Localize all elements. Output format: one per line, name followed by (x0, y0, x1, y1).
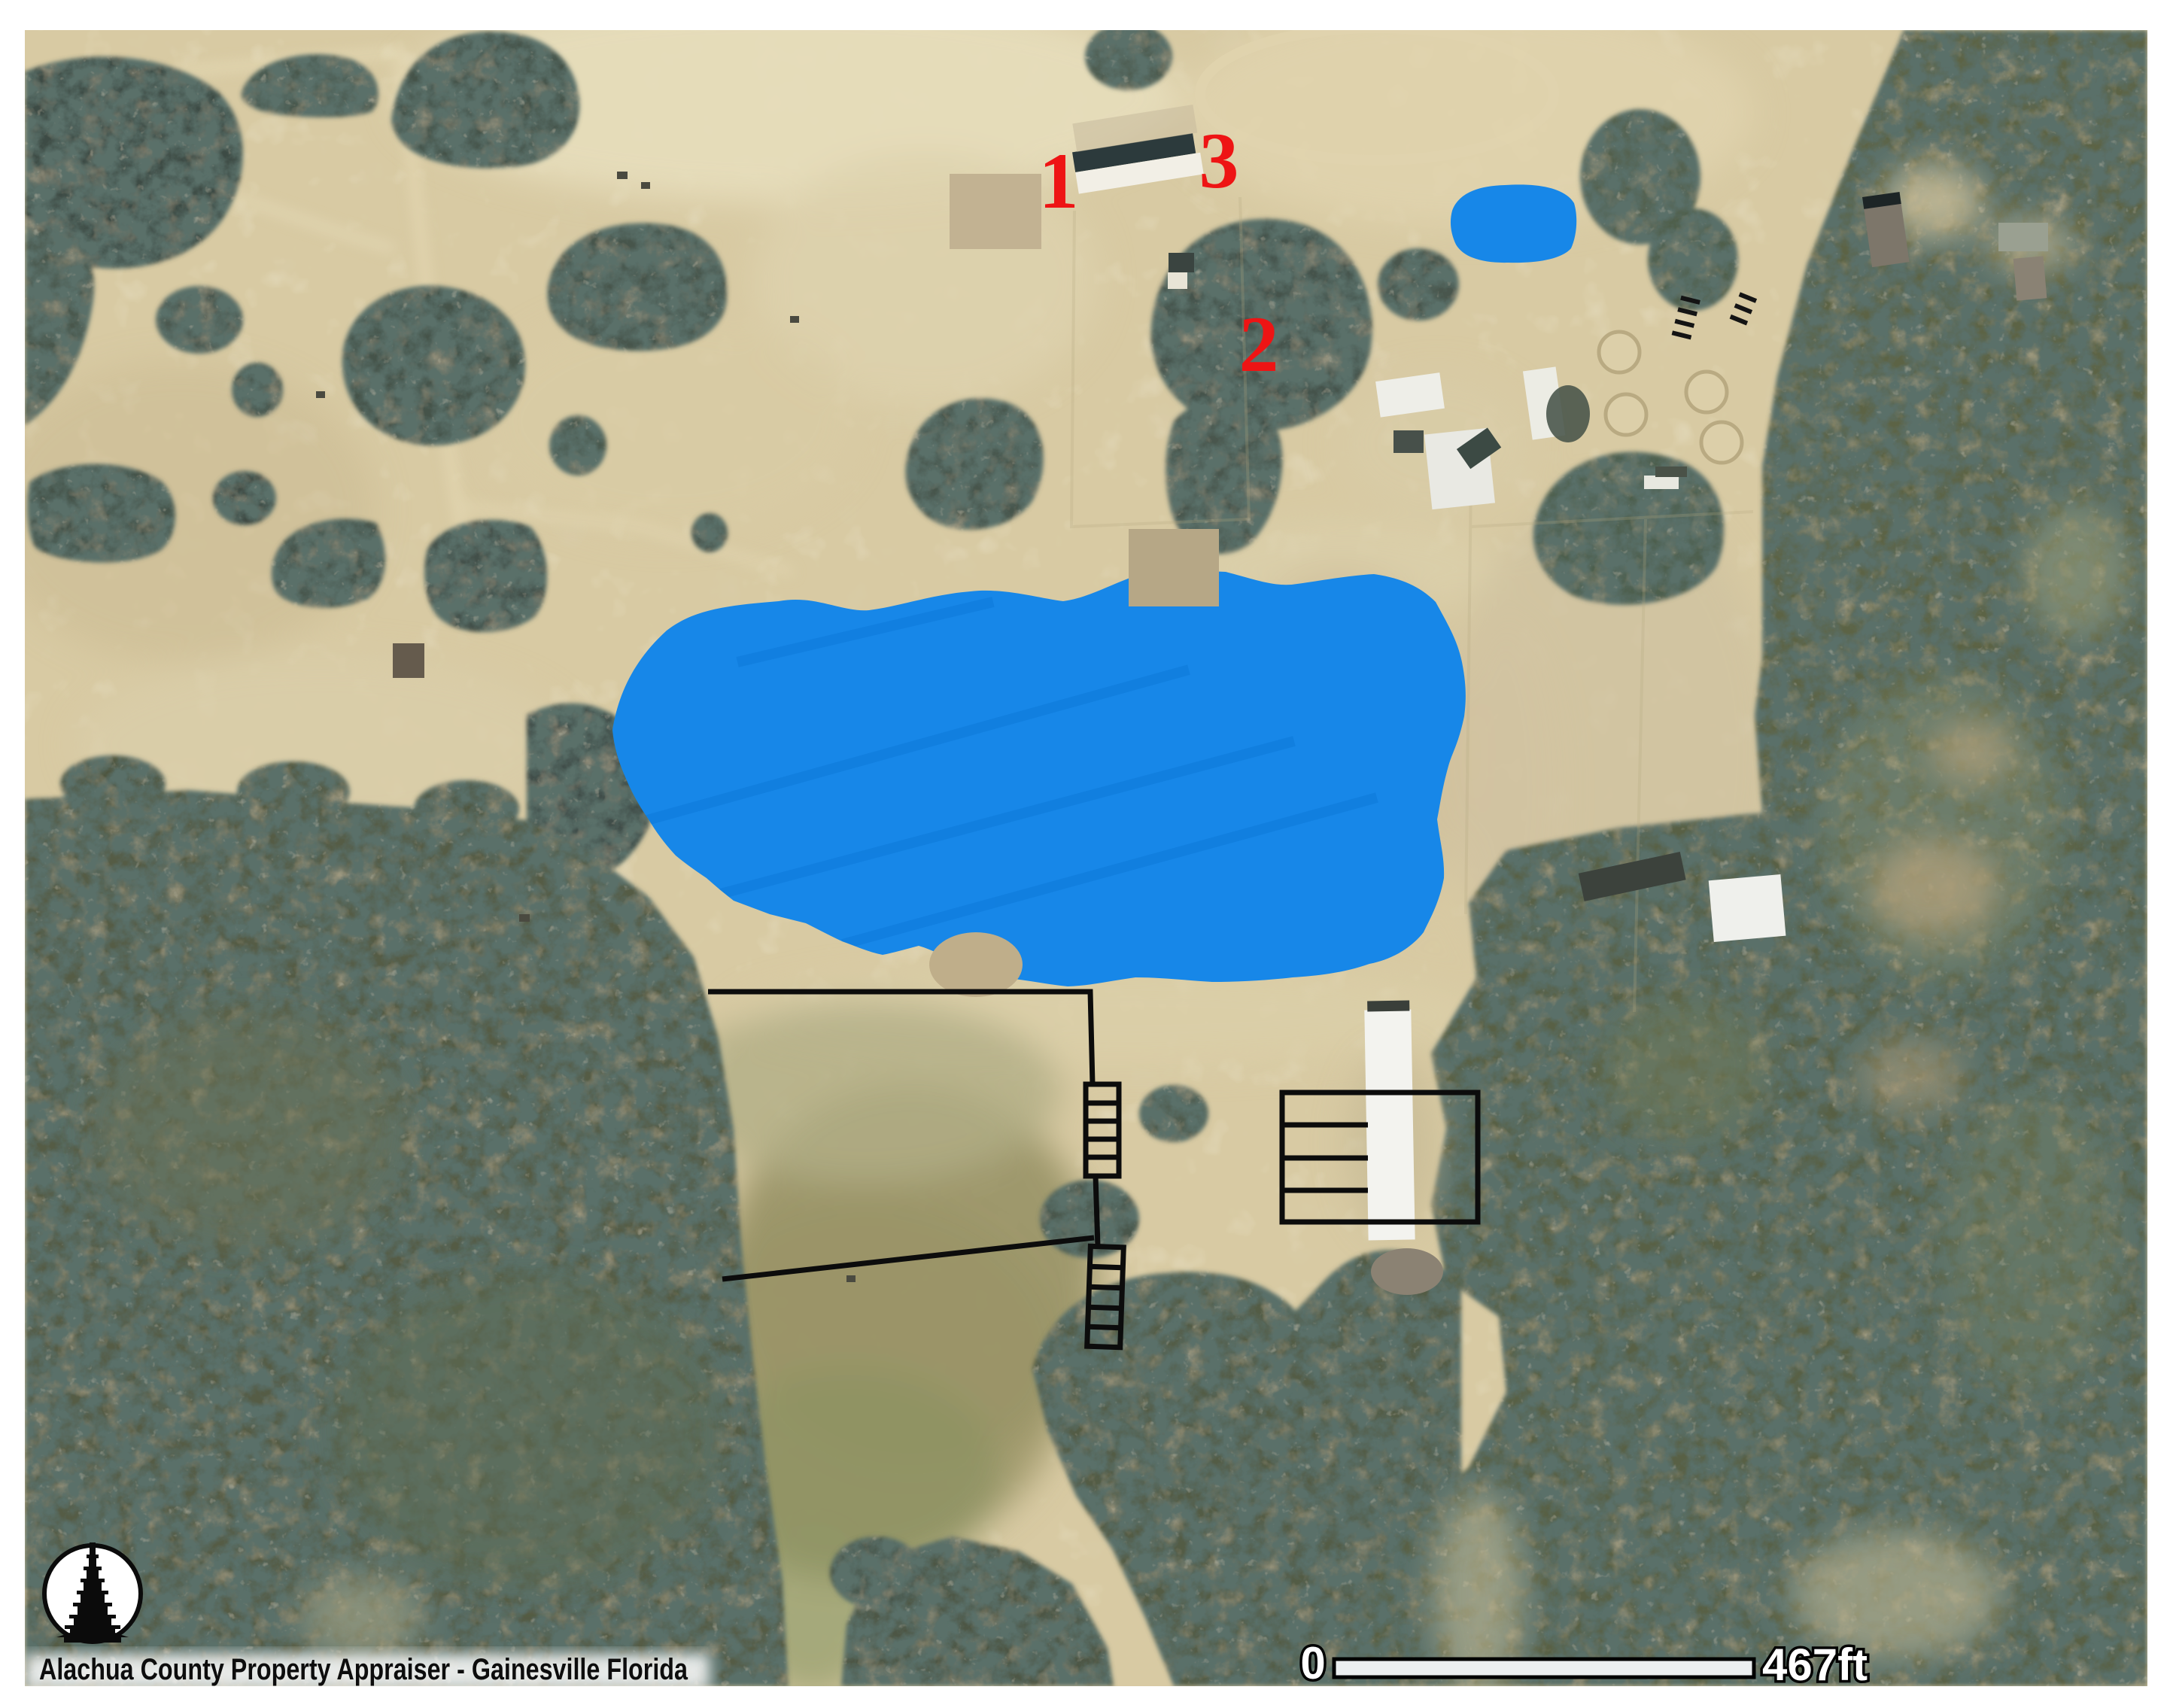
svg-text:0: 0 (1300, 1638, 1325, 1688)
svg-text:467ft: 467ft (1762, 1640, 1868, 1690)
svg-text:1: 1 (1039, 137, 1079, 225)
svg-text:Alachua County Property Apprai: Alachua County Property Appraiser - Gain… (39, 1653, 688, 1686)
svg-text:3: 3 (1199, 117, 1239, 205)
svg-text:2: 2 (1239, 300, 1279, 388)
